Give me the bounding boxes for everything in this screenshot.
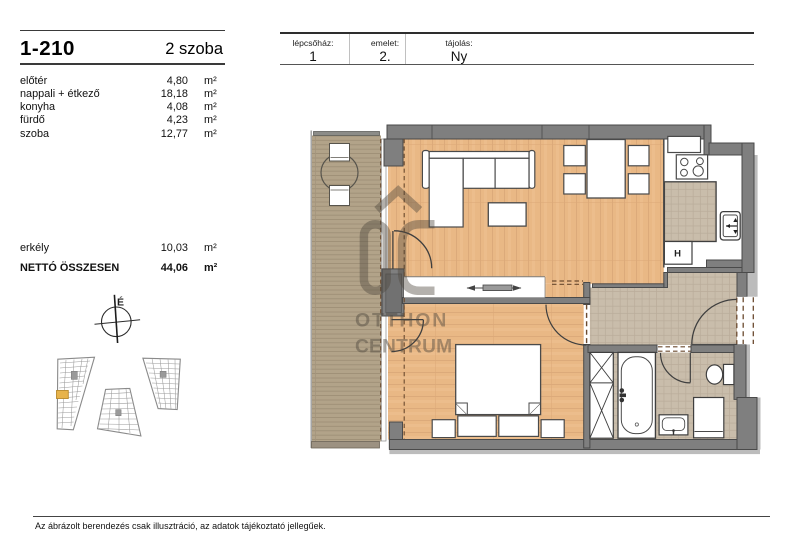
svg-text:H: H bbox=[674, 249, 681, 260]
svg-text:É: É bbox=[117, 296, 124, 309]
svg-text:CENTRUM: CENTRUM bbox=[355, 337, 452, 358]
svg-text:OTTHON: OTTHON bbox=[355, 310, 448, 332]
